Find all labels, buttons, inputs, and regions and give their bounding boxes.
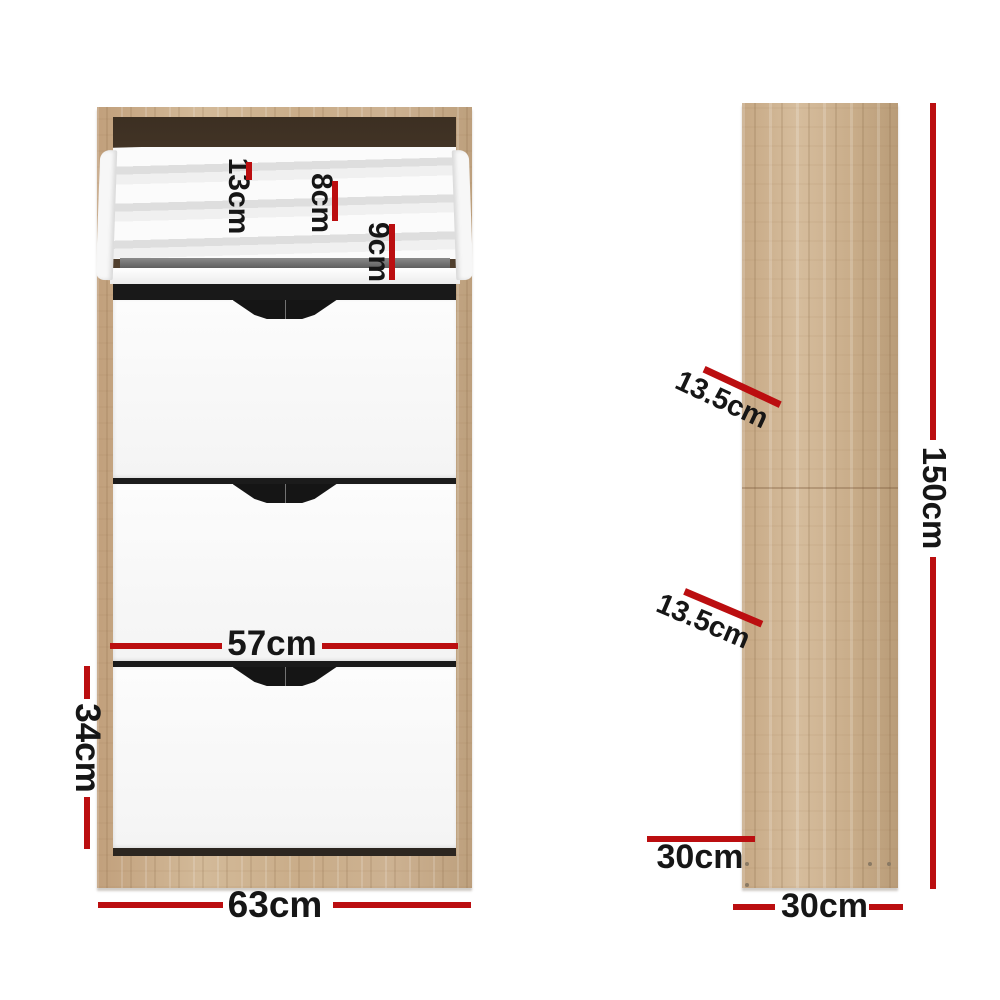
dim-tier-top-line xyxy=(246,162,252,180)
side-panel xyxy=(742,103,898,888)
panel-screw xyxy=(887,862,891,866)
dimension-diagram: 13cm 8cm 9cm 57cm 34cm 63cm xyxy=(0,0,1000,1000)
panel-seam xyxy=(742,487,898,489)
tray-slats xyxy=(113,147,456,259)
tray-felt-strip xyxy=(120,258,450,268)
dim-cabinet-width-line-left xyxy=(98,902,223,908)
dim-drawer-width-line-right xyxy=(322,643,458,649)
dim-tier-bottom-line xyxy=(389,224,395,280)
dim-cabinet-depth: 30cm xyxy=(772,889,877,923)
dim-cabinet-depth-line-left xyxy=(733,904,775,910)
tray-shadow-gap xyxy=(113,284,456,300)
drawer-1-handle-notch xyxy=(233,300,337,319)
dim-cabinet-depth-line-right xyxy=(869,904,903,910)
drawer-3 xyxy=(113,667,456,848)
dim-drawer-width: 57cm xyxy=(217,626,327,661)
plinth-shadow xyxy=(113,848,456,856)
panel-screw xyxy=(745,883,749,887)
dim-drawer-width-line-left xyxy=(110,643,222,649)
tray-front-lip xyxy=(110,268,460,284)
dim-drawer-height-line-bottom xyxy=(84,797,90,849)
dim-height-line-bottom xyxy=(930,557,936,889)
front-view: 13cm 8cm 9cm 57cm 34cm 63cm xyxy=(0,0,520,1000)
dim-tier-mid-line xyxy=(332,181,338,221)
drawer-1 xyxy=(113,300,456,478)
side-view: 13.5cm 13.5cm 150cm 30cm 30cm xyxy=(520,0,1000,1000)
dim-cabinet-width-line-right xyxy=(333,902,471,908)
dim-cabinet-width: 63cm xyxy=(215,886,335,923)
dim-drawer-height: 34cm xyxy=(69,693,105,803)
front-flip-tray xyxy=(113,147,456,259)
drawer-2-handle-notch xyxy=(233,484,337,503)
drawer-3-handle-notch xyxy=(233,667,337,686)
dim-shelf-depth: 30cm xyxy=(650,840,750,874)
dim-height-line-top xyxy=(930,103,936,440)
panel-screw xyxy=(868,862,872,866)
dim-cabinet-height: 150cm xyxy=(915,438,951,558)
